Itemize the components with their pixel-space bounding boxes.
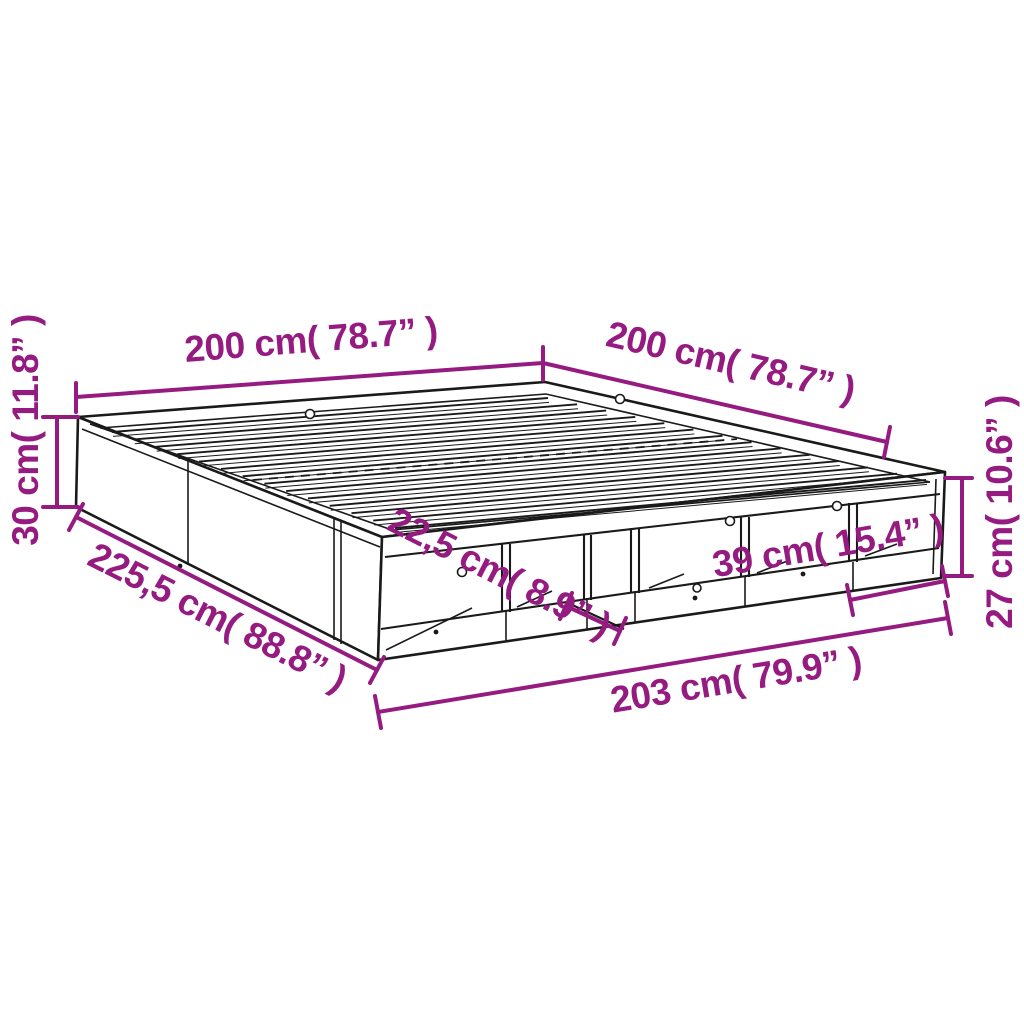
dim-top-left-length-label: 200 cm( 78.7” ) [183,309,439,370]
dim-top-right-width-label: 200 cm( 78.7” ) [603,313,859,410]
dim-compartment-height: 27 cm( 10.6” ) [945,395,1020,629]
dim-frame-height-label: 30 cm( 11.8” ) [5,314,46,546]
bed-frame-dimension-diagram: 200 cm( 78.7” ) 200 cm( 78.7” ) 30 cm( 1… [0,0,1024,1024]
dim-frame-height: 30 cm( 11.8” ) [5,314,78,546]
dim-compartment-height-label: 27 cm( 10.6” ) [979,395,1020,629]
diagram-stage: 200 cm( 78.7” ) 200 cm( 78.7” ) 30 cm( 1… [0,0,1024,1024]
